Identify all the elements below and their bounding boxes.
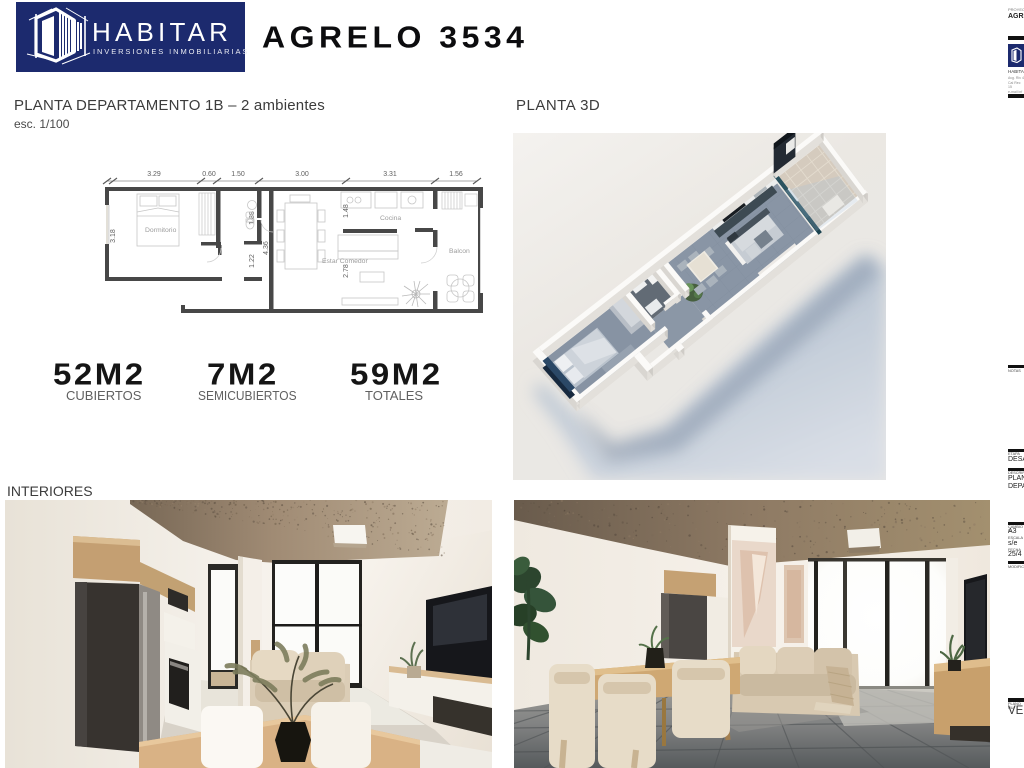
svg-text:3.00: 3.00: [295, 171, 309, 178]
svg-text:3.18: 3.18: [110, 229, 117, 243]
svg-text:Cocina: Cocina: [380, 215, 401, 222]
svg-text:4.36: 4.36: [263, 241, 270, 255]
svg-text:1.48: 1.48: [343, 204, 350, 218]
svg-text:Balcon: Balcon: [449, 248, 470, 255]
svg-text:Estar Comedor: Estar Comedor: [322, 258, 368, 265]
svg-text:1.50: 1.50: [231, 171, 245, 178]
svg-text:0.60: 0.60: [202, 171, 216, 178]
svg-text:3.29: 3.29: [147, 171, 161, 178]
svg-text:3.31: 3.31: [383, 171, 397, 178]
svg-text:2.78: 2.78: [343, 264, 350, 278]
svg-text:1.56: 1.56: [449, 171, 463, 178]
svg-text:Dormitorio: Dormitorio: [145, 227, 177, 234]
svg-text:1.22: 1.22: [249, 254, 256, 268]
